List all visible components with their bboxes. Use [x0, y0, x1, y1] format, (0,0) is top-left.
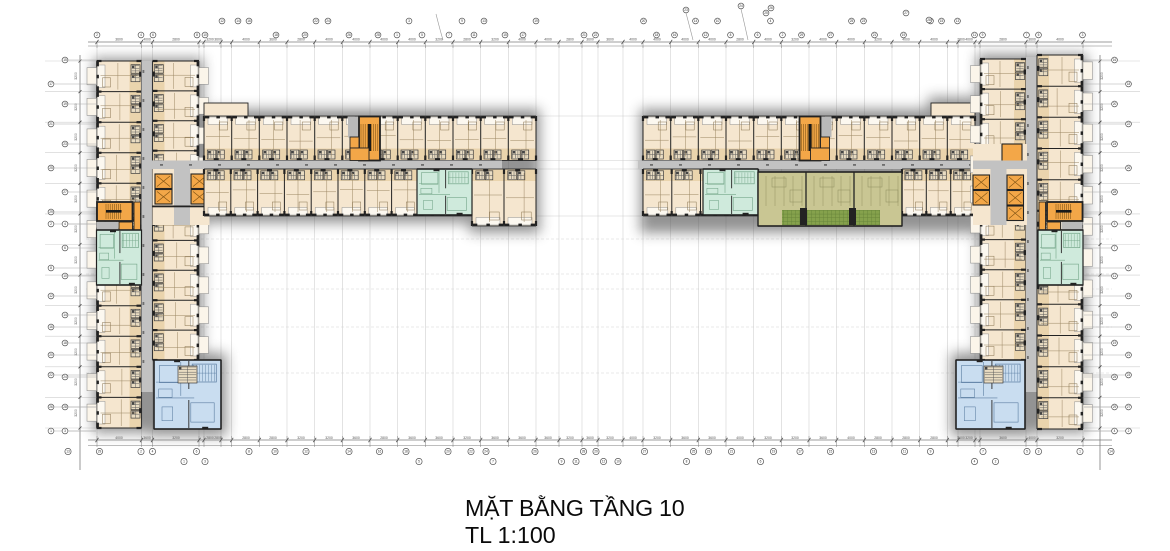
svg-text:18: 18 [1127, 82, 1131, 86]
svg-text:3200: 3200 [74, 409, 78, 417]
svg-text:8: 8 [248, 450, 250, 454]
svg-text:3200: 3200 [435, 38, 443, 42]
svg-text:4000: 4000 [819, 38, 827, 42]
svg-text:3200: 3200 [1100, 133, 1104, 141]
svg-text:15: 15 [63, 58, 67, 62]
svg-text:2800: 2800 [380, 436, 388, 440]
svg-text:4000: 4000 [965, 38, 973, 42]
svg-text:9: 9 [930, 450, 932, 454]
svg-text:28: 28 [927, 18, 931, 22]
svg-text:27: 27 [63, 190, 67, 194]
svg-text:3200: 3200 [74, 317, 78, 325]
svg-text:3200: 3200 [791, 38, 799, 42]
svg-text:2800: 2800 [566, 38, 574, 42]
svg-text:3200: 3200 [874, 38, 882, 42]
svg-text:3200: 3200 [764, 436, 772, 440]
svg-text:3200: 3200 [653, 436, 661, 440]
svg-text:3600: 3600 [606, 38, 614, 42]
svg-text:8: 8 [730, 33, 732, 37]
svg-text:4000: 4000 [408, 38, 416, 42]
svg-text:2800: 2800 [736, 38, 744, 42]
svg-text:11: 11 [1113, 274, 1117, 278]
svg-text:14: 14 [63, 313, 67, 317]
svg-text:12: 12 [49, 294, 53, 298]
svg-text:3200: 3200 [172, 436, 180, 440]
svg-text:13: 13 [482, 19, 486, 23]
svg-text:18: 18 [404, 450, 408, 454]
svg-text:26: 26 [769, 6, 773, 10]
svg-text:10: 10 [203, 33, 207, 37]
svg-text:1: 1 [1079, 450, 1081, 454]
svg-text:4000: 4000 [847, 436, 855, 440]
svg-text:3200: 3200 [1100, 348, 1104, 356]
svg-text:2: 2 [50, 222, 52, 226]
svg-text:3200: 3200 [1100, 256, 1104, 264]
svg-text:29: 29 [1113, 405, 1117, 409]
svg-text:2: 2 [995, 460, 997, 464]
svg-text:26: 26 [533, 450, 537, 454]
svg-text:MẶT BẰNG TẦNG 10: MẶT BẰNG TẦNG 10 [465, 494, 684, 521]
svg-text:2: 2 [140, 450, 142, 454]
svg-text:3600: 3600 [408, 436, 416, 440]
svg-text:4000: 4000 [143, 38, 151, 42]
svg-text:19: 19 [772, 450, 776, 454]
svg-text:1: 1 [183, 460, 185, 464]
svg-text:3600: 3600 [1028, 38, 1036, 42]
svg-text:19: 19 [534, 19, 538, 23]
svg-text:2800: 2800 [242, 436, 250, 440]
svg-text:4: 4 [974, 460, 976, 464]
svg-text:3600: 3600 [352, 436, 360, 440]
svg-text:3200: 3200 [566, 436, 574, 440]
svg-text:15: 15 [1113, 313, 1117, 317]
svg-text:1: 1 [396, 33, 398, 37]
svg-text:8: 8 [686, 460, 688, 464]
svg-text:13: 13 [872, 450, 876, 454]
svg-text:23: 23 [63, 142, 67, 146]
svg-text:27: 27 [904, 11, 908, 15]
svg-text:17: 17 [49, 82, 53, 86]
svg-text:2800: 2800 [874, 436, 882, 440]
svg-text:4000: 4000 [736, 436, 744, 440]
svg-text:21: 21 [730, 450, 734, 454]
svg-text:20: 20 [303, 33, 307, 37]
svg-text:11: 11 [903, 450, 907, 454]
svg-text:11: 11 [574, 460, 578, 464]
svg-text:4: 4 [770, 19, 772, 23]
svg-text:24: 24 [63, 375, 67, 379]
svg-text:11: 11 [973, 33, 977, 37]
svg-text:3600: 3600 [708, 436, 716, 440]
svg-text:3600: 3600 [115, 38, 123, 42]
svg-text:3200: 3200 [1100, 317, 1104, 325]
svg-text:28: 28 [582, 450, 586, 454]
svg-text:26: 26 [1127, 166, 1131, 170]
svg-text:3600: 3600 [586, 38, 594, 42]
svg-text:18: 18 [63, 341, 67, 345]
svg-text:9: 9 [1128, 266, 1130, 270]
svg-text:13: 13 [1127, 294, 1131, 298]
svg-text:4000: 4000 [764, 38, 772, 42]
svg-text:2800: 2800 [930, 436, 938, 440]
svg-text:16: 16 [247, 19, 251, 23]
svg-text:4000: 4000 [544, 38, 552, 42]
svg-text:11: 11 [472, 33, 476, 37]
svg-text:3600: 3600 [435, 436, 443, 440]
svg-text:18: 18 [655, 33, 659, 37]
svg-text:12: 12 [304, 450, 308, 454]
svg-text:23: 23 [707, 450, 711, 454]
svg-text:25: 25 [850, 19, 854, 23]
svg-text:3600: 3600 [143, 436, 151, 440]
svg-text:3200: 3200 [606, 436, 614, 440]
svg-text:28: 28 [1113, 190, 1117, 194]
svg-text:2800: 2800 [297, 38, 305, 42]
svg-text:2800: 2800 [206, 436, 214, 440]
svg-text:4: 4 [152, 450, 154, 454]
svg-text:25: 25 [49, 166, 53, 170]
svg-text:6: 6 [64, 246, 66, 250]
svg-text:8: 8 [50, 266, 52, 270]
svg-text:4: 4 [140, 33, 142, 37]
svg-text:25: 25 [764, 11, 768, 15]
svg-text:3200: 3200 [74, 286, 78, 294]
svg-text:19: 19 [63, 102, 67, 106]
svg-text:15: 15 [829, 450, 833, 454]
svg-text:15: 15 [503, 33, 507, 37]
svg-text:20: 20 [1113, 102, 1117, 106]
svg-text:28: 28 [63, 405, 67, 409]
svg-text:2800: 2800 [999, 38, 1007, 42]
svg-text:3200: 3200 [1056, 436, 1064, 440]
svg-text:3200: 3200 [74, 72, 78, 80]
svg-text:18: 18 [274, 33, 278, 37]
svg-text:10: 10 [716, 19, 720, 23]
svg-text:3200: 3200 [1100, 409, 1104, 417]
svg-text:29: 29 [594, 450, 598, 454]
svg-text:5: 5 [1026, 450, 1028, 454]
svg-text:3200: 3200 [74, 378, 78, 386]
svg-text:23: 23 [1127, 373, 1131, 377]
svg-text:16: 16 [378, 450, 382, 454]
svg-text:3200: 3200 [1100, 72, 1104, 80]
svg-text:14: 14 [236, 19, 240, 23]
svg-text:3600: 3600 [518, 436, 526, 440]
svg-text:26: 26 [347, 33, 351, 37]
svg-text:2: 2 [782, 33, 784, 37]
svg-text:24: 24 [739, 4, 743, 8]
svg-text:12: 12 [220, 19, 224, 23]
svg-text:3200: 3200 [297, 436, 305, 440]
svg-text:2800: 2800 [902, 436, 910, 440]
svg-text:3200: 3200 [74, 256, 78, 264]
svg-text:3600: 3600 [819, 436, 827, 440]
svg-text:9: 9 [561, 460, 563, 464]
svg-text:4000: 4000 [629, 38, 637, 42]
svg-text:13: 13 [66, 450, 70, 454]
svg-text:16: 16 [49, 325, 53, 329]
svg-text:3200: 3200 [1100, 103, 1104, 111]
svg-text:5: 5 [1038, 33, 1040, 37]
svg-text:5: 5 [421, 33, 423, 37]
svg-text:22: 22 [469, 450, 473, 454]
svg-text:14: 14 [694, 19, 698, 23]
svg-text:12: 12 [602, 460, 606, 464]
svg-text:4000: 4000 [708, 38, 716, 42]
svg-text:26: 26 [49, 405, 53, 409]
svg-text:3200: 3200 [491, 38, 499, 42]
svg-text:24: 24 [484, 450, 488, 454]
svg-text:17: 17 [798, 450, 802, 454]
svg-text:16: 16 [1113, 58, 1117, 62]
svg-text:3200: 3200 [463, 436, 471, 440]
svg-text:4000: 4000 [847, 38, 855, 42]
svg-text:23: 23 [684, 8, 688, 12]
svg-text:24: 24 [326, 19, 330, 23]
svg-text:9: 9 [982, 33, 984, 37]
svg-text:5: 5 [418, 460, 420, 464]
svg-text:2800: 2800 [172, 38, 180, 42]
svg-text:3600: 3600 [586, 436, 594, 440]
svg-text:13: 13 [956, 19, 960, 23]
svg-text:1: 1 [1128, 210, 1130, 214]
svg-text:3200: 3200 [206, 38, 214, 42]
svg-text:3200: 3200 [1100, 286, 1104, 294]
svg-text:3600: 3600 [957, 436, 965, 440]
svg-text:8: 8 [196, 33, 198, 37]
svg-text:10: 10 [63, 274, 67, 278]
svg-text:9: 9 [461, 19, 463, 23]
svg-text:4000: 4000 [1028, 436, 1036, 440]
svg-text:27: 27 [1127, 405, 1131, 409]
svg-text:21: 21 [873, 33, 877, 37]
svg-text:3600: 3600 [214, 38, 222, 42]
svg-text:16: 16 [673, 33, 677, 37]
svg-text:3600: 3600 [999, 436, 1007, 440]
svg-text:4000: 4000 [930, 38, 938, 42]
svg-text:4000: 4000 [629, 436, 637, 440]
svg-text:27: 27 [643, 450, 647, 454]
svg-text:4000: 4000 [242, 38, 250, 42]
svg-text:15: 15 [940, 19, 944, 23]
svg-text:21: 21 [1127, 353, 1131, 357]
svg-text:3: 3 [1128, 222, 1130, 226]
svg-text:2: 2 [96, 33, 98, 37]
svg-text:3200: 3200 [74, 348, 78, 356]
svg-text:12: 12 [704, 33, 708, 37]
svg-text:4000: 4000 [115, 436, 123, 440]
svg-text:23: 23 [862, 19, 866, 23]
svg-text:1: 1 [50, 429, 52, 433]
svg-text:28: 28 [376, 33, 380, 37]
svg-text:3200: 3200 [1100, 378, 1104, 386]
svg-text:3: 3 [204, 460, 206, 464]
svg-text:3200: 3200 [74, 195, 78, 203]
svg-text:3200: 3200 [325, 436, 333, 440]
svg-text:3600: 3600 [544, 436, 552, 440]
svg-text:3200: 3200 [74, 103, 78, 111]
svg-text:21: 21 [582, 33, 586, 37]
svg-text:10: 10 [616, 460, 620, 464]
svg-text:22: 22 [49, 373, 53, 377]
svg-text:2800: 2800 [463, 38, 471, 42]
svg-text:6: 6 [152, 33, 154, 37]
svg-text:4000: 4000 [352, 38, 360, 42]
svg-text:20: 20 [49, 353, 53, 357]
svg-text:6: 6 [757, 33, 759, 37]
svg-text:2: 2 [1128, 429, 1130, 433]
svg-text:7: 7 [448, 33, 450, 37]
svg-text:2800: 2800 [214, 436, 222, 440]
svg-text:3200: 3200 [74, 225, 78, 233]
svg-text:2800: 2800 [269, 436, 277, 440]
svg-text:14: 14 [347, 450, 351, 454]
svg-text:25: 25 [1113, 375, 1117, 379]
svg-text:29: 29 [49, 210, 53, 214]
svg-text:7: 7 [492, 460, 494, 464]
svg-text:29: 29 [800, 33, 804, 37]
svg-text:3: 3 [64, 429, 66, 433]
svg-text:2800: 2800 [957, 38, 965, 42]
svg-text:4: 4 [1114, 429, 1116, 433]
svg-text:24: 24 [1113, 142, 1117, 146]
svg-text:22: 22 [314, 19, 318, 23]
svg-text:22: 22 [1127, 122, 1131, 126]
svg-text:20: 20 [446, 450, 450, 454]
svg-text:7: 7 [982, 450, 984, 454]
svg-text:3: 3 [408, 19, 410, 23]
svg-text:19: 19 [902, 33, 906, 37]
svg-text:TL 1:100: TL 1:100 [465, 522, 556, 548]
svg-text:20: 20 [642, 19, 646, 23]
svg-text:3600: 3600 [681, 436, 689, 440]
svg-text:7: 7 [1114, 246, 1116, 250]
svg-text:4000: 4000 [681, 38, 689, 42]
svg-text:3200: 3200 [1100, 195, 1104, 203]
svg-text:7: 7 [1026, 33, 1028, 37]
svg-text:5: 5 [1114, 222, 1116, 226]
svg-text:17: 17 [1127, 325, 1131, 329]
svg-text:3600: 3600 [491, 436, 499, 440]
svg-text:22: 22 [594, 33, 598, 37]
svg-text:4: 4 [64, 222, 66, 226]
svg-text:3: 3 [1038, 450, 1040, 454]
svg-text:10: 10 [273, 450, 277, 454]
svg-text:25: 25 [692, 450, 696, 454]
svg-text:29: 29 [98, 450, 102, 454]
svg-text:27: 27 [829, 33, 833, 37]
svg-text:3200: 3200 [74, 133, 78, 141]
svg-text:4000: 4000 [325, 38, 333, 42]
svg-text:4000: 4000 [1056, 38, 1064, 42]
svg-text:17: 17 [521, 33, 525, 37]
svg-text:4000: 4000 [518, 38, 526, 42]
svg-text:6: 6 [760, 460, 762, 464]
svg-text:19: 19 [1113, 341, 1117, 345]
svg-text:3200: 3200 [1100, 225, 1104, 233]
svg-text:3200: 3200 [965, 436, 973, 440]
svg-text:3200: 3200 [791, 436, 799, 440]
svg-text:14: 14 [1109, 450, 1113, 454]
svg-text:3: 3 [1082, 33, 1084, 37]
svg-text:4000: 4000 [380, 38, 388, 42]
svg-text:21: 21 [49, 122, 53, 126]
svg-text:6: 6 [196, 450, 198, 454]
